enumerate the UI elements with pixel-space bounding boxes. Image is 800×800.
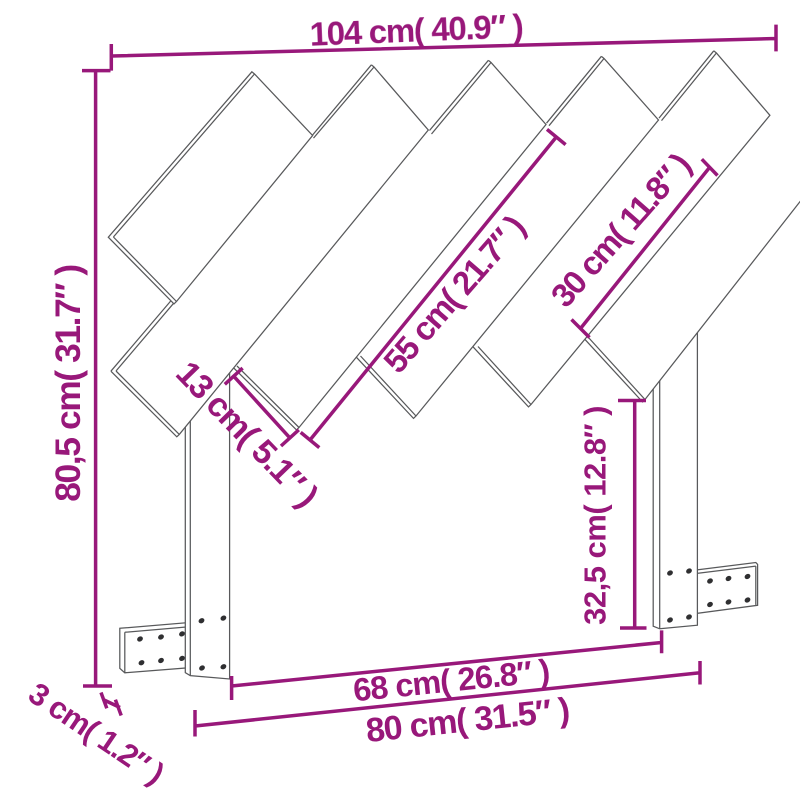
svg-text:32,5 cm( 12.8″ ): 32,5 cm( 12.8″ )	[578, 406, 613, 625]
svg-text:80,5 cm( 31.7″ ): 80,5 cm( 31.7″ )	[48, 265, 88, 502]
